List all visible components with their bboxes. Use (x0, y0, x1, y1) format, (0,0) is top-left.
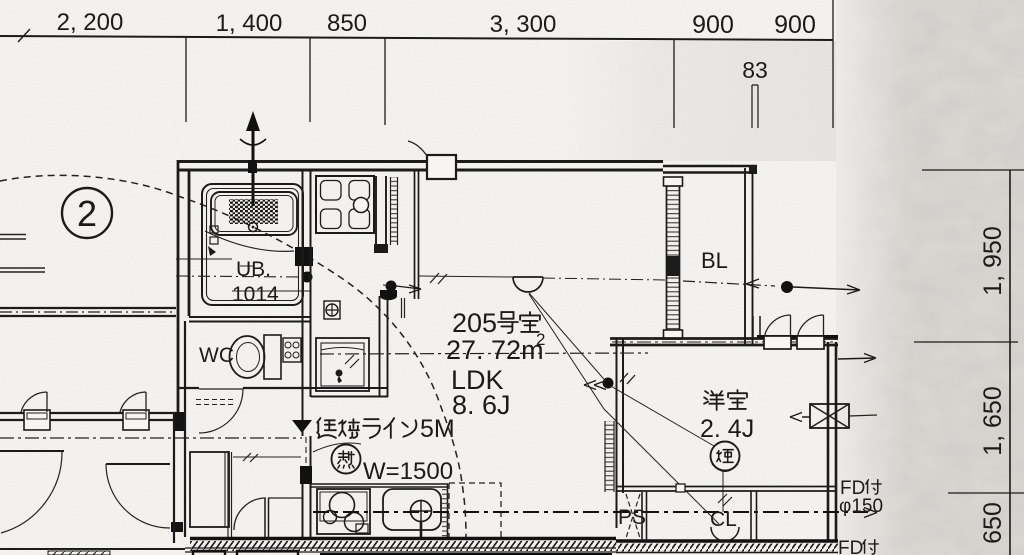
svg-text:BL: BL (701, 248, 728, 273)
svg-text:3, 300: 3, 300 (490, 11, 557, 38)
svg-text:2, 200: 2, 200 (57, 9, 124, 36)
svg-text:1014: 1014 (232, 283, 279, 306)
svg-text:205: 205 (452, 308, 497, 338)
svg-text:1, 400: 1, 400 (216, 10, 283, 37)
svg-text:900: 900 (692, 11, 734, 39)
svg-text:2: 2 (536, 330, 545, 349)
svg-text:CL: CL (710, 508, 737, 531)
svg-text:900: 900 (774, 11, 816, 39)
svg-text:W=1500: W=1500 (363, 458, 453, 485)
svg-text:650: 650 (979, 502, 1007, 544)
svg-text:WC: WC (199, 344, 234, 367)
svg-text:PS: PS (618, 506, 646, 529)
svg-text:FD: FD (838, 538, 863, 555)
svg-text:8. 6J: 8. 6J (452, 390, 511, 420)
svg-text:850: 850 (327, 10, 367, 37)
svg-text:5M: 5M (420, 415, 455, 443)
svg-text:UB.: UB. (236, 258, 271, 281)
svg-text:φ150: φ150 (839, 496, 883, 517)
svg-text:1, 650: 1, 650 (979, 386, 1007, 456)
svg-text:83: 83 (742, 57, 768, 83)
svg-text:2: 2 (77, 193, 97, 234)
svg-text:2. 4J: 2. 4J (700, 415, 754, 443)
svg-text:27. 72m: 27. 72m (446, 335, 544, 365)
svg-text:1, 950: 1, 950 (979, 226, 1007, 296)
